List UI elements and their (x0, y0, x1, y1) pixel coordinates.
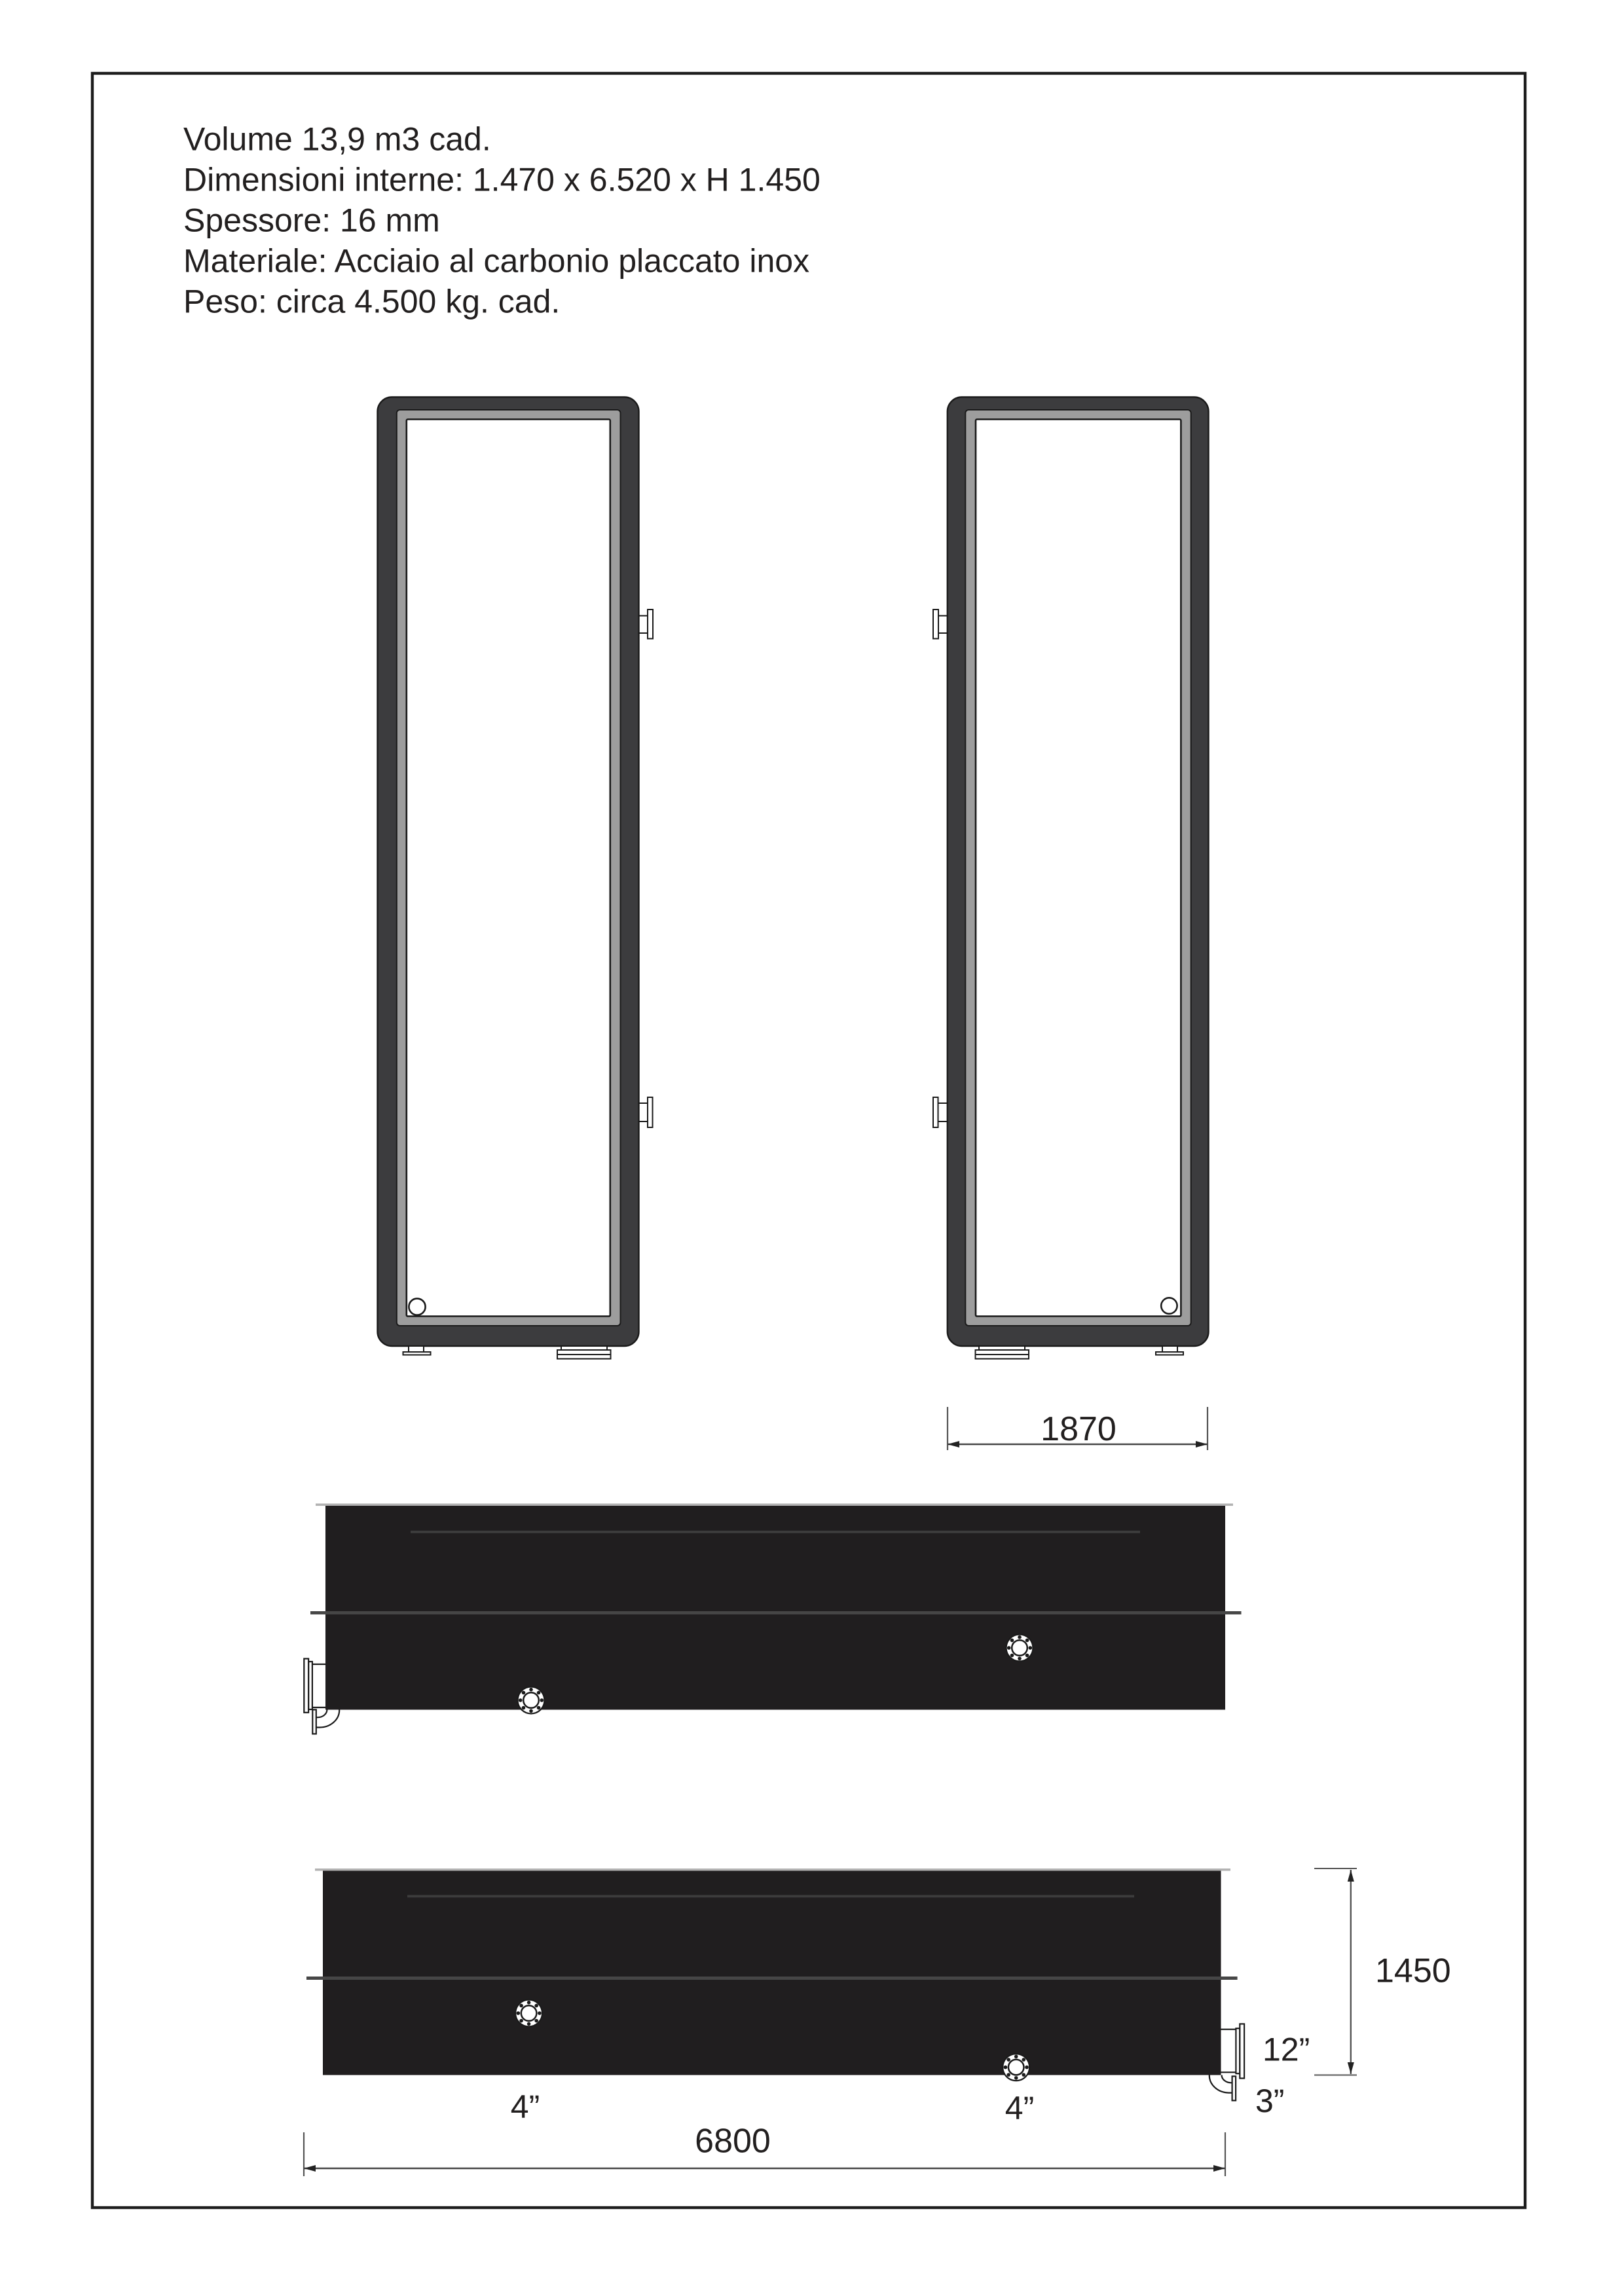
svg-text:4”: 4” (511, 2088, 540, 2125)
svg-text:3”: 3” (1255, 2083, 1284, 2119)
svg-text:Volume 13,9 m3 cad.: Volume 13,9 m3 cad. (183, 121, 491, 158)
svg-text:12”: 12” (1263, 2031, 1310, 2068)
svg-text:6800: 6800 (695, 2123, 771, 2160)
svg-text:1870: 1870 (1041, 1410, 1116, 1448)
svg-text:Materiale: Acciaio al carbonio: Materiale: Acciaio al carbonio placcato … (183, 243, 809, 280)
svg-text:1450: 1450 (1375, 1952, 1451, 1990)
svg-text:4”: 4” (1005, 2090, 1034, 2126)
svg-text:Peso: circa 4.500 kg. cad.: Peso: circa 4.500 kg. cad. (183, 283, 560, 320)
svg-text:Spessore: 16 mm: Spessore: 16 mm (183, 202, 440, 239)
svg-text:Dimensioni interne: 1.470 x 6.: Dimensioni interne: 1.470 x 6.520 x H 1.… (183, 162, 821, 198)
